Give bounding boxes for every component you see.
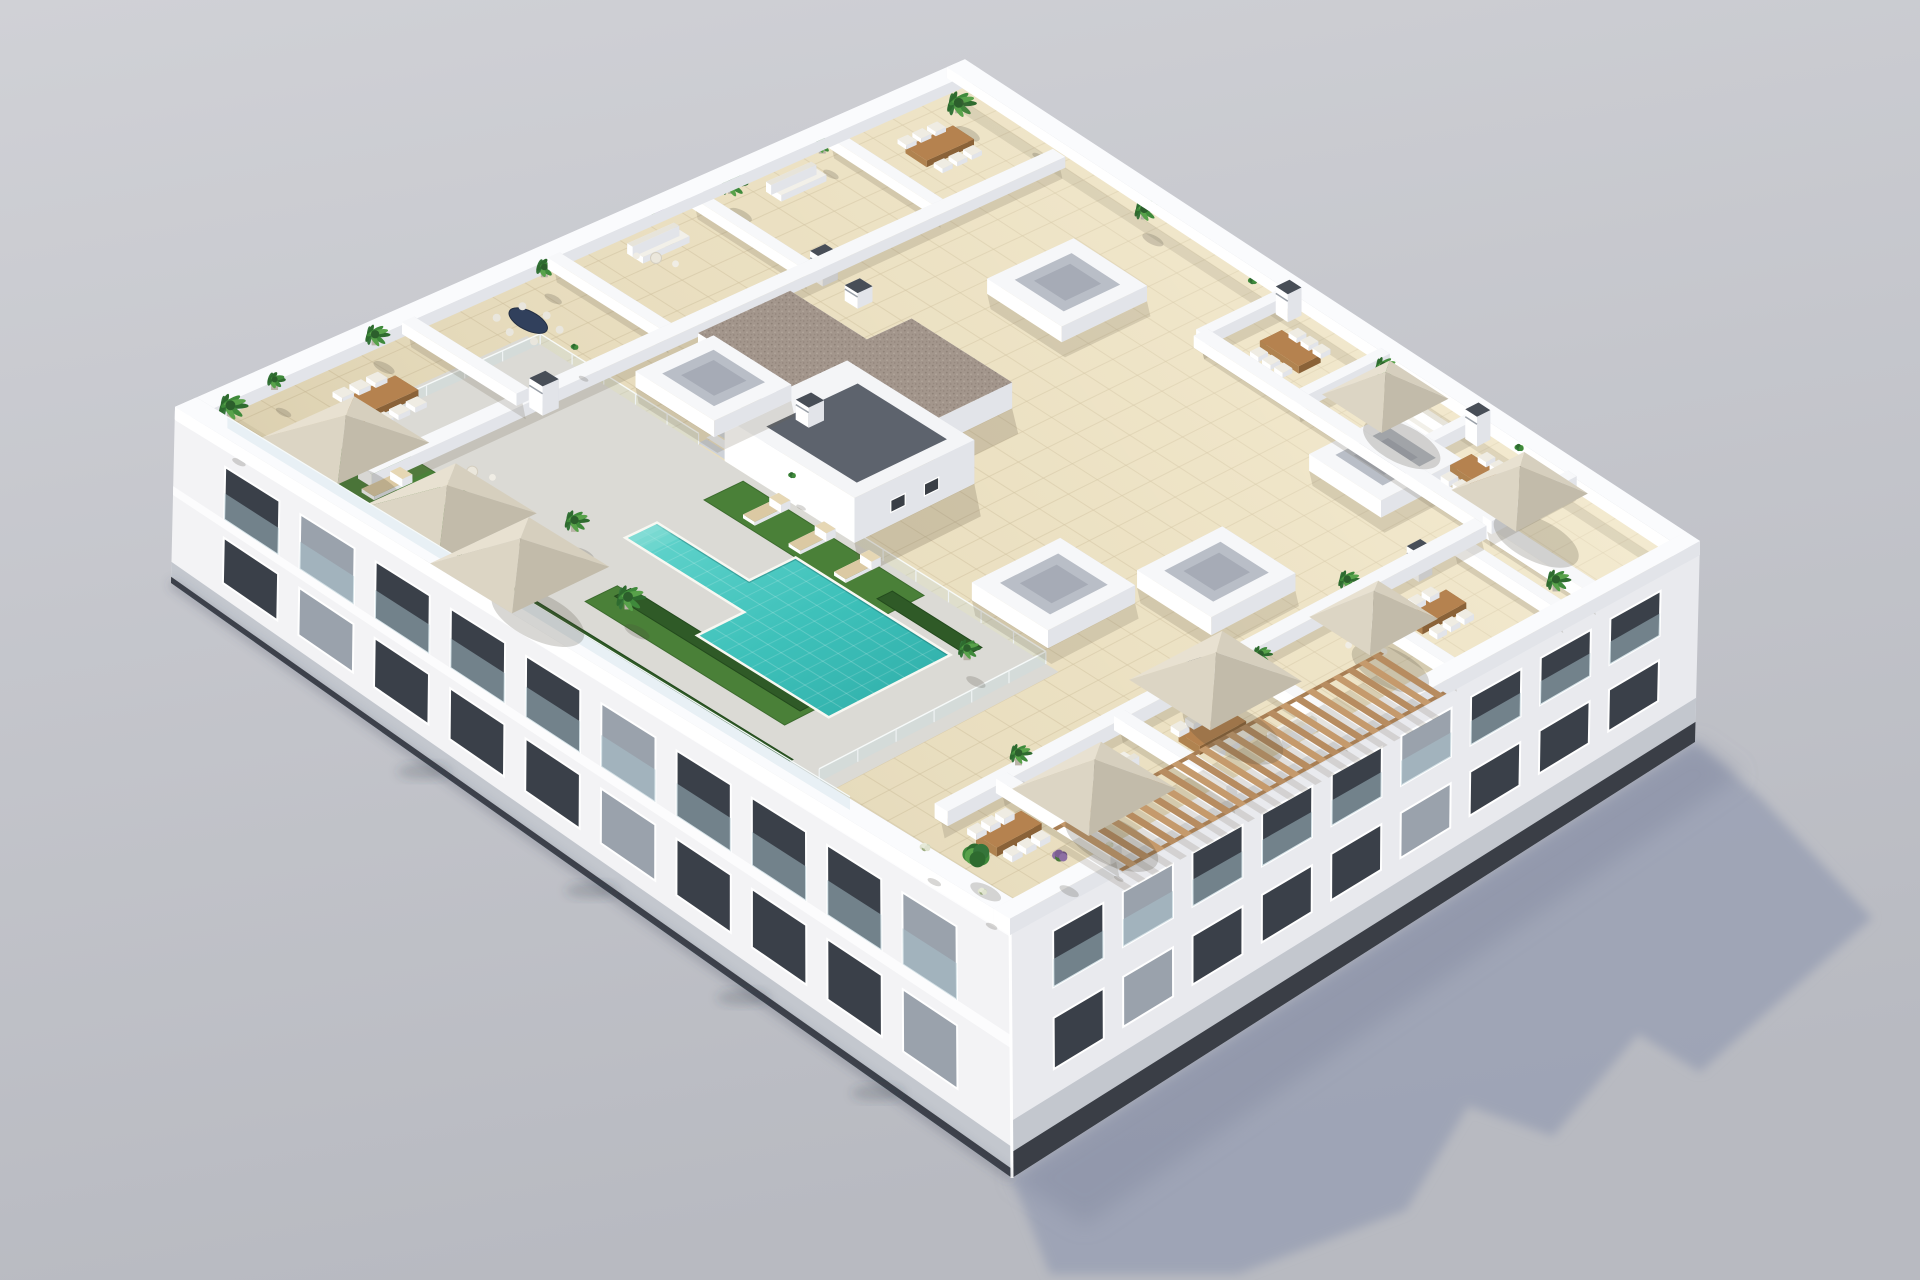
plant-center bbox=[963, 644, 971, 652]
chair bbox=[518, 302, 526, 310]
tree-canopy bbox=[969, 851, 985, 867]
chair bbox=[556, 326, 564, 334]
shrub bbox=[1519, 446, 1524, 451]
plant-center bbox=[1015, 749, 1023, 757]
roof-item bbox=[529, 371, 558, 416]
pilotis-shadow bbox=[397, 764, 449, 780]
render-canvas bbox=[0, 0, 1920, 1280]
shrub bbox=[574, 346, 578, 350]
shrub bbox=[982, 890, 987, 895]
pilotis-shadow bbox=[717, 990, 769, 1006]
shrub bbox=[792, 474, 796, 478]
plant-center bbox=[623, 592, 633, 602]
plant-center bbox=[225, 400, 235, 410]
chair bbox=[493, 314, 501, 322]
architectural-render bbox=[0, 0, 1920, 1280]
chair bbox=[672, 260, 679, 267]
chair bbox=[530, 337, 538, 345]
plant-center bbox=[541, 263, 548, 270]
corner-pier bbox=[1010, 919, 1012, 1178]
shrub bbox=[924, 845, 930, 851]
chair bbox=[543, 311, 551, 319]
chair bbox=[489, 474, 496, 481]
chair bbox=[506, 328, 514, 336]
plant-center bbox=[1343, 575, 1351, 583]
shrub bbox=[1059, 853, 1067, 861]
roof-item bbox=[1465, 403, 1490, 447]
pilotis-shadow bbox=[566, 883, 618, 899]
round-table bbox=[651, 253, 662, 264]
plant-center bbox=[1552, 575, 1560, 583]
pilotis-shadow bbox=[851, 1085, 903, 1101]
plant-center bbox=[272, 376, 278, 382]
roof-item bbox=[1276, 280, 1302, 322]
chair bbox=[633, 252, 640, 259]
plant-center bbox=[371, 330, 379, 338]
plant-center bbox=[570, 516, 578, 524]
